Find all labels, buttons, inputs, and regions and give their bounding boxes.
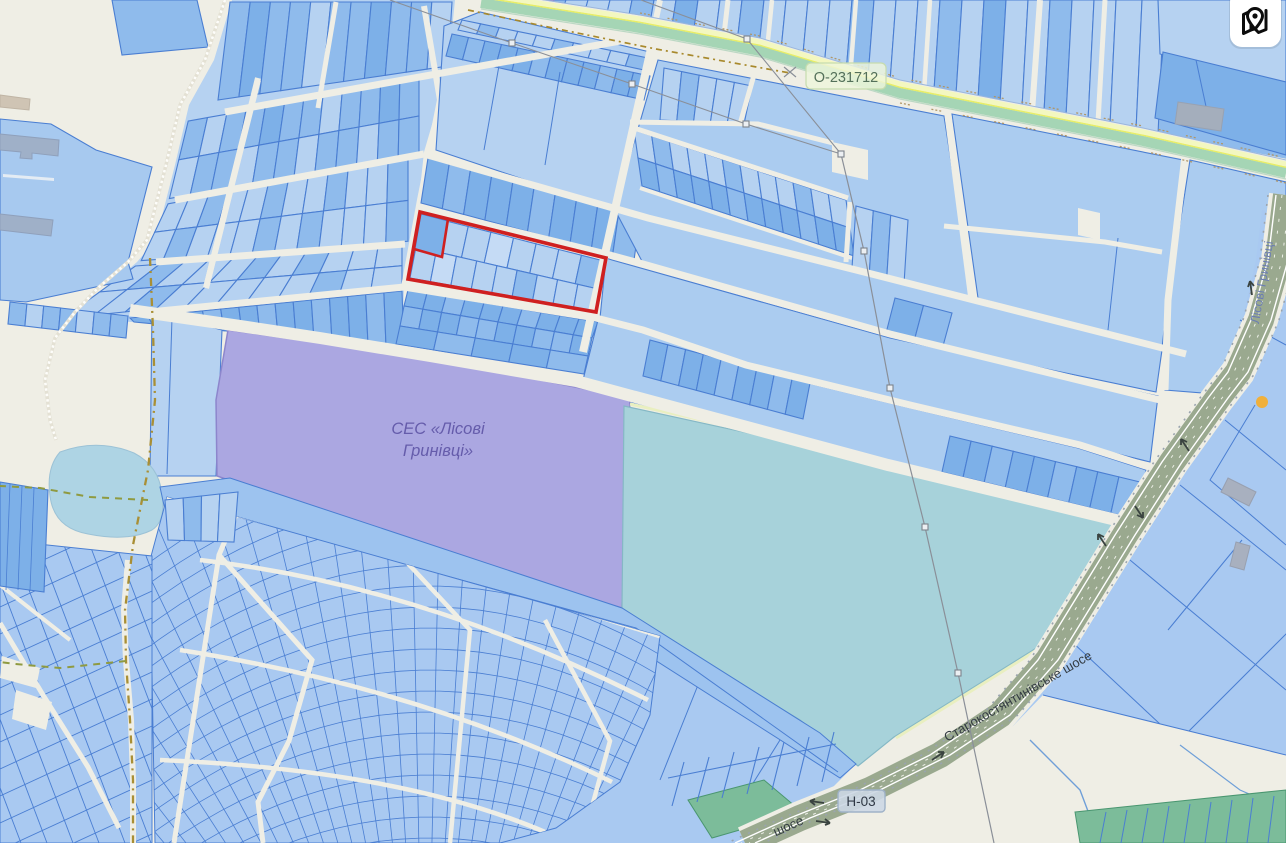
svg-text:О-231712: О-231712	[814, 70, 879, 86]
svg-text:СЕС «Лісові: СЕС «Лісові	[391, 420, 486, 438]
svg-text:Гринівці»: Гринівці»	[403, 442, 473, 460]
svg-text:Н-03: Н-03	[846, 794, 875, 809]
